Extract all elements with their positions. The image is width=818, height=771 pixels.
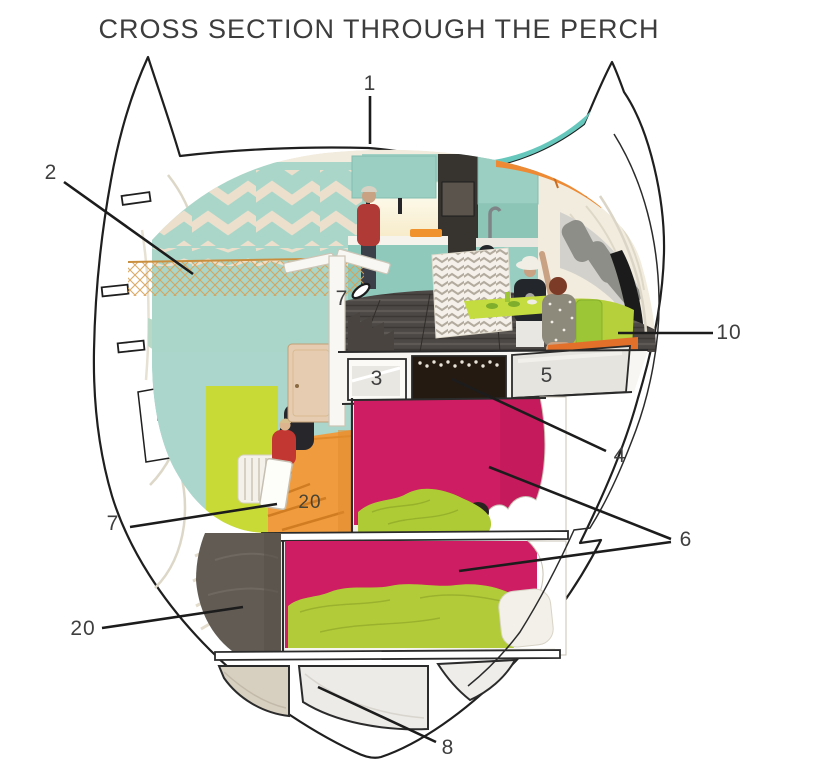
callout-1-label: 1 [364,72,377,96]
lower-floor-slab [215,650,560,660]
callout-20-floor-label: 20 [70,617,95,641]
callout-7-lower-label: 7 [107,512,120,536]
tote-bag [576,300,602,346]
callout-7-upper-label: 7 [336,287,349,311]
callout-20-stairs-label: 20 [298,492,321,514]
callout-8-label: 8 [442,736,455,760]
cutting-board [410,229,442,237]
bunk-room-lower [283,541,566,655]
callout-3-label: 3 [371,367,384,391]
cross-section-page: CROSS SECTION THROUGH THE PERCH [0,0,818,771]
mid-floor-slab [262,531,568,541]
callout-2-label: 2 [45,161,58,185]
callout-5-label: 5 [541,364,554,388]
partition-chevron [432,248,512,338]
callout-10-label: 10 [716,321,741,345]
callout-4-label: 4 [614,444,627,468]
cross-section-diagram [0,0,818,771]
growing-bed-4 [412,356,506,400]
bottom-storage [219,660,515,729]
callout-6-label: 6 [680,528,693,552]
pillow [497,587,555,648]
door [288,344,334,422]
